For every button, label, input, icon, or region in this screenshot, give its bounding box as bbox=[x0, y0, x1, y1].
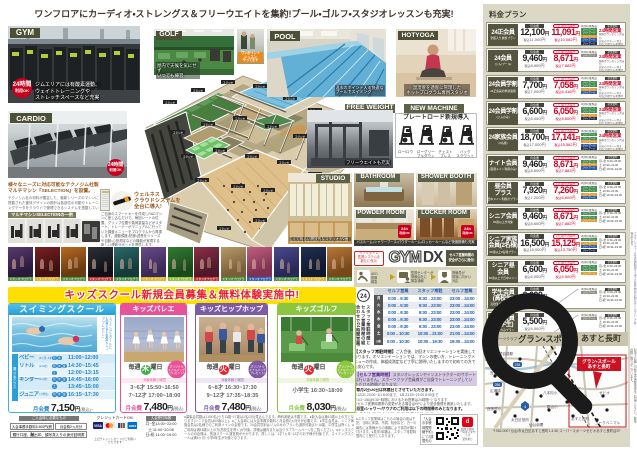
svg-text:スタジオ: スタジオ bbox=[197, 178, 208, 182]
svg-text:スタジオ: スタジオ bbox=[233, 184, 244, 188]
svg-text:プレゼント!: プレゼント! bbox=[338, 371, 353, 375]
svg-text:スタジオ: スタジオ bbox=[215, 148, 226, 152]
svg-text:スタジオ: スタジオ bbox=[223, 80, 234, 84]
svg-text:VISA: VISA bbox=[94, 424, 102, 428]
svg-text:緊急通報: 緊急通報 bbox=[411, 278, 425, 283]
svg-text:スタジオ: スタジオ bbox=[165, 100, 176, 104]
svg-text:スタジオ: スタジオ bbox=[267, 124, 278, 128]
svg-text:緊急: 緊急 bbox=[371, 279, 378, 284]
svg-text:スタジオ: スタジオ bbox=[247, 154, 258, 158]
svg-text:スタジオ: スタジオ bbox=[183, 154, 194, 158]
svg-text:24: 24 bbox=[360, 294, 367, 300]
svg-text:スタジオ: スタジオ bbox=[255, 84, 266, 88]
svg-text:スタジオ: スタジオ bbox=[295, 134, 306, 138]
svg-text:対応: 対応 bbox=[452, 278, 459, 283]
svg-text:スタジオ: スタジオ bbox=[173, 130, 184, 134]
svg-text:スタジオ: スタジオ bbox=[255, 218, 266, 222]
svg-text:スタジオ: スタジオ bbox=[193, 88, 204, 92]
svg-text:プレゼント!: プレゼント! bbox=[169, 371, 184, 375]
svg-text:スタジオ: スタジオ bbox=[235, 116, 246, 120]
svg-text:AMEX: AMEX bbox=[129, 423, 137, 427]
svg-text:スタジオ: スタジオ bbox=[203, 122, 214, 126]
svg-text:スタジオ: スタジオ bbox=[263, 188, 274, 192]
svg-text:プレゼント!: プレゼント! bbox=[250, 371, 265, 375]
svg-text:スタジオ: スタジオ bbox=[279, 160, 290, 164]
svg-text:スタジオ: スタジオ bbox=[219, 226, 230, 230]
